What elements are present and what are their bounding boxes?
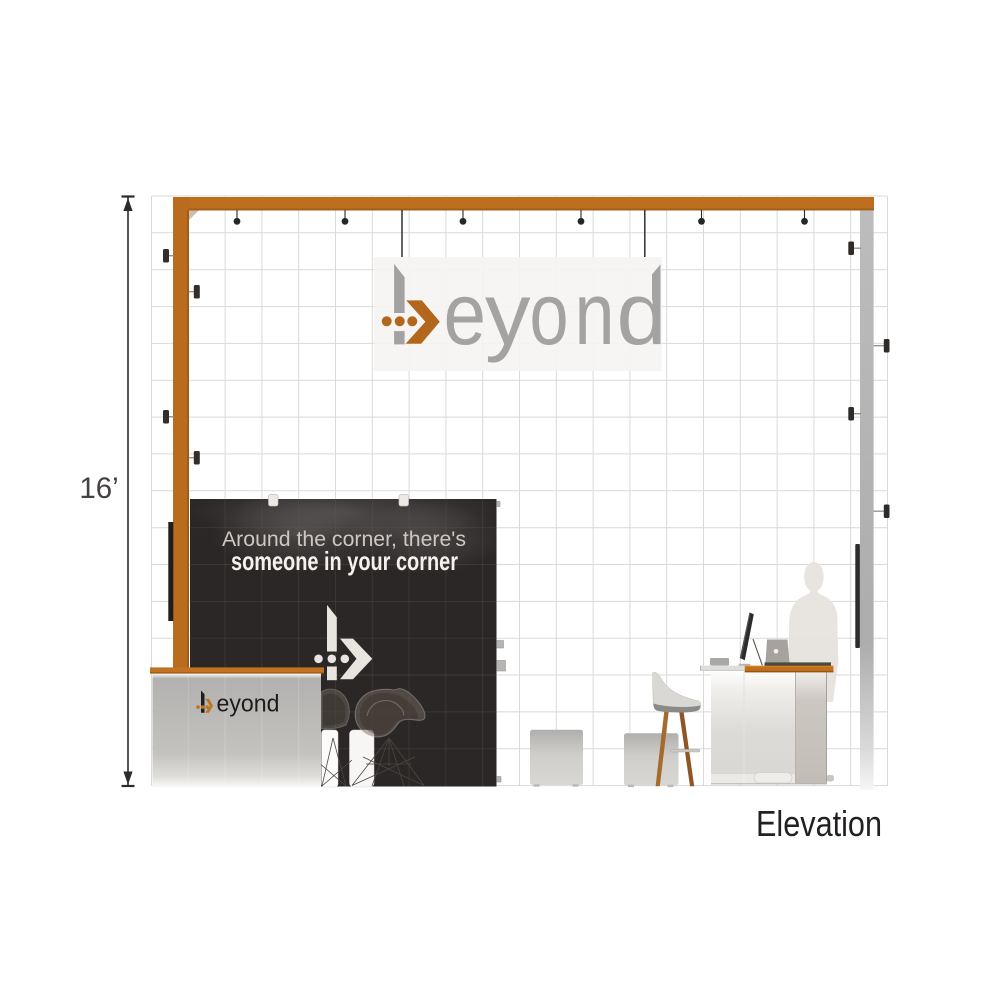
svg-text:o: o xyxy=(530,264,569,363)
svg-text:e: e xyxy=(444,264,487,363)
svg-text:eyond: eyond xyxy=(217,691,280,718)
svg-text:n: n xyxy=(575,264,615,363)
svg-text:Elevation: Elevation xyxy=(756,803,882,844)
svg-text:16’: 16’ xyxy=(79,472,118,505)
svg-text:y: y xyxy=(485,264,531,363)
svg-text:someone in your corner: someone in your corner xyxy=(231,546,458,576)
